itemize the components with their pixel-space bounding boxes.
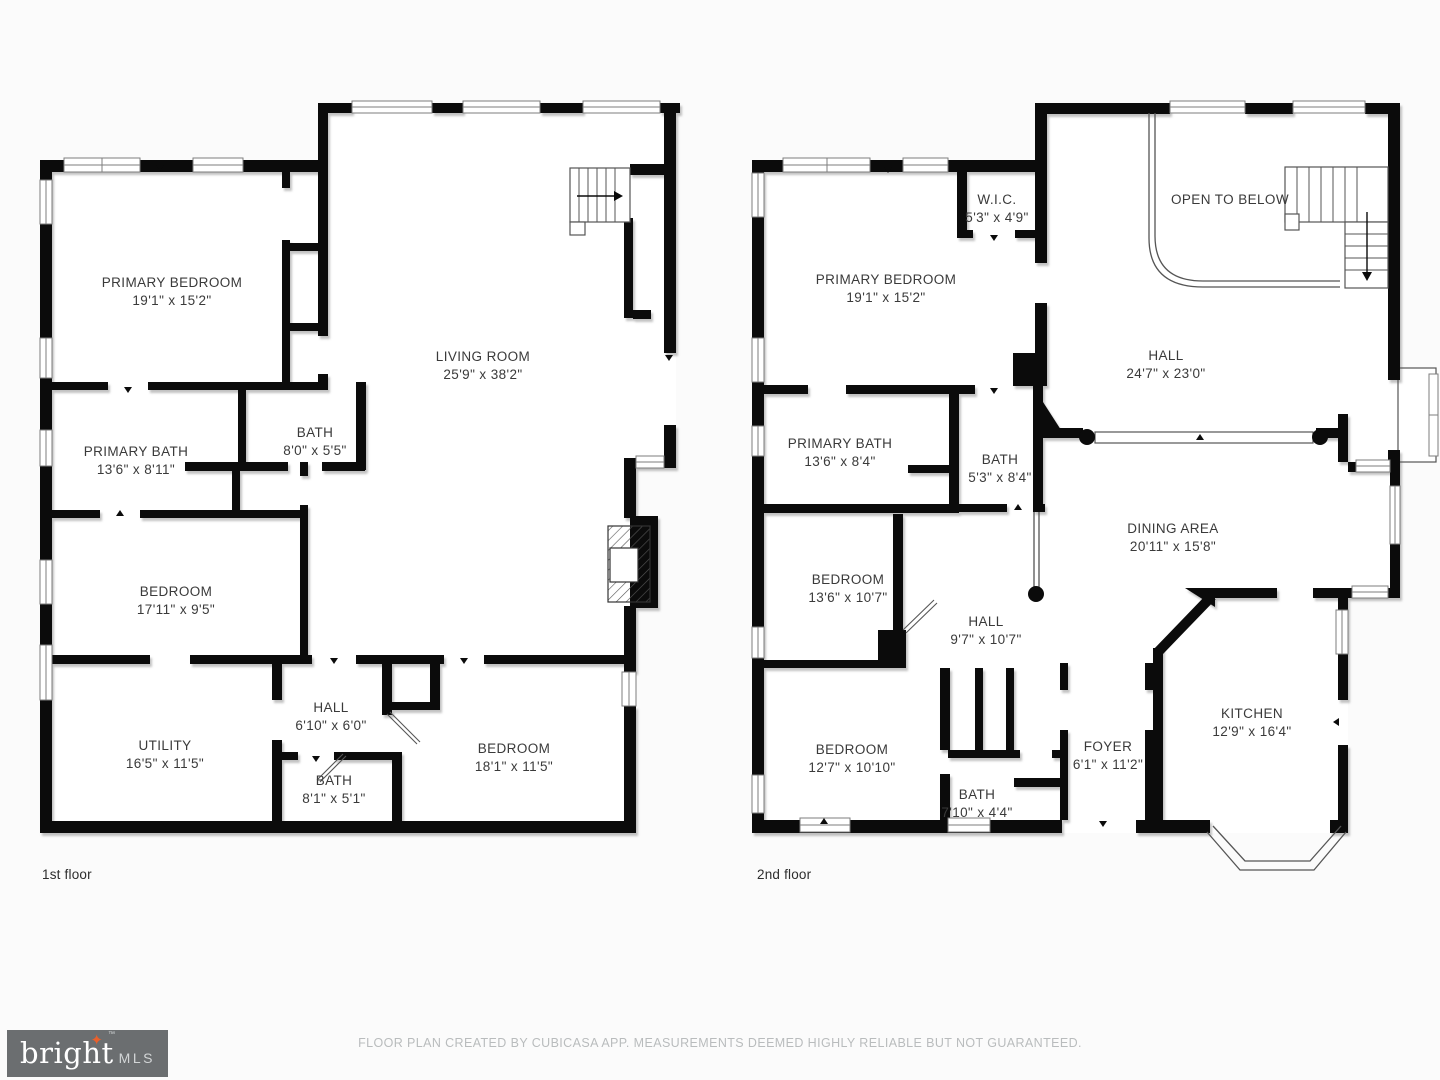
room-dims-utility: 16'5" x 11'5": [126, 756, 204, 771]
room-dims-hall: 6'10" x 6'0": [295, 718, 366, 733]
room-dims-hall-lower: 9'7" x 10'7": [950, 632, 1021, 647]
room-label-kitchen: KITCHEN: [1221, 706, 1283, 721]
room-dims-primary-bedroom: 19'1" x 15'2": [132, 293, 211, 308]
floor-plan-page: PRIMARY BEDROOM 19'1" x 15'2" LIVING ROO…: [0, 0, 1440, 1080]
floor1-caption: 1st floor: [42, 867, 92, 882]
room-dims-bath: 8'0" x 5'5": [283, 443, 346, 458]
room-label-open-to-below: OPEN TO BELOW: [1171, 192, 1289, 207]
room-dims-primary-bath-2: 13'6" x 8'4": [804, 454, 875, 469]
room-dims-bedroom-mid: 17'11" x 9'5": [137, 602, 215, 617]
room-label-hall-lower: HALL: [968, 614, 1003, 629]
room-label-wic: W.I.C.: [977, 192, 1016, 207]
room-dims-hall-upper: 24'7" x 23'0": [1126, 366, 1205, 381]
floor2-caption: 2nd floor: [757, 867, 812, 882]
room-dims-wic: 5'3" x 4'9": [965, 210, 1028, 225]
room-label-bedroom-mid: BEDROOM: [140, 584, 213, 599]
room-label-bedroom-13: BEDROOM: [812, 572, 885, 587]
disclaimer-text: FLOOR PLAN CREATED BY CUBICASA APP. MEAS…: [0, 1036, 1440, 1050]
logo-mls-text: MLS: [119, 1050, 155, 1066]
floor-plans-canvas: PRIMARY BEDROOM 19'1" x 15'2" LIVING ROO…: [0, 0, 1440, 1080]
room-label-dining: DINING AREA: [1127, 521, 1218, 536]
room-dims-bedroom-13: 13'6" x 10'7": [808, 590, 887, 605]
room-label-primary-bath: PRIMARY BATH: [84, 444, 189, 459]
room-dims-bath-lower: 7'10" x 4'4": [941, 805, 1012, 820]
room-label-living-room: LIVING ROOM: [436, 349, 530, 364]
room-dims-dining: 20'11" x 15'8": [1130, 539, 1216, 554]
room-label-bedroom-lower: BEDROOM: [816, 742, 889, 757]
room-label-primary-bedroom: PRIMARY BEDROOM: [102, 275, 243, 290]
room-dims-foyer: 6'1" x 11'2": [1073, 757, 1143, 772]
floor-plan-second: W.I.C. 5'3" x 4'9" OPEN TO BELOW PRIMARY…: [752, 101, 1438, 882]
room-dims-bedroom-br: 18'1" x 11'5": [475, 759, 553, 774]
room-label-primary-bath-2: PRIMARY BATH: [788, 436, 893, 451]
room-label-primary-bedroom-2: PRIMARY BEDROOM: [816, 272, 957, 287]
room-dims-primary-bath: 13'6" x 8'11": [97, 462, 175, 477]
room-dims-bedroom-lower: 12'7" x 10'10": [808, 760, 895, 775]
room-label-bath-lower: BATH: [959, 787, 996, 802]
room-label-bath-upper: BATH: [982, 452, 1019, 467]
room-label-foyer: FOYER: [1084, 739, 1133, 754]
room-label-bath-small: BATH: [316, 773, 353, 788]
fireplace: [608, 526, 650, 602]
room-dims-primary-bedroom-2: 19'1" x 15'2": [846, 290, 925, 305]
room-dims-bath-upper: 5'3" x 8'4": [968, 470, 1031, 485]
room-label-bath: BATH: [297, 425, 334, 440]
room-label-hall: HALL: [313, 700, 348, 715]
room-dims-living-room: 25'9" x 38'2": [443, 367, 522, 382]
room-label-utility: UTILITY: [138, 738, 191, 753]
room-dims-bath-small: 8'1" x 5'1": [302, 791, 365, 806]
room-dims-kitchen: 12'9" x 16'4": [1212, 724, 1291, 739]
room-label-hall-upper: HALL: [1148, 348, 1183, 363]
room-label-bedroom-br: BEDROOM: [478, 741, 551, 756]
floor-plan-first: PRIMARY BEDROOM 19'1" x 15'2" LIVING ROO…: [40, 101, 680, 882]
